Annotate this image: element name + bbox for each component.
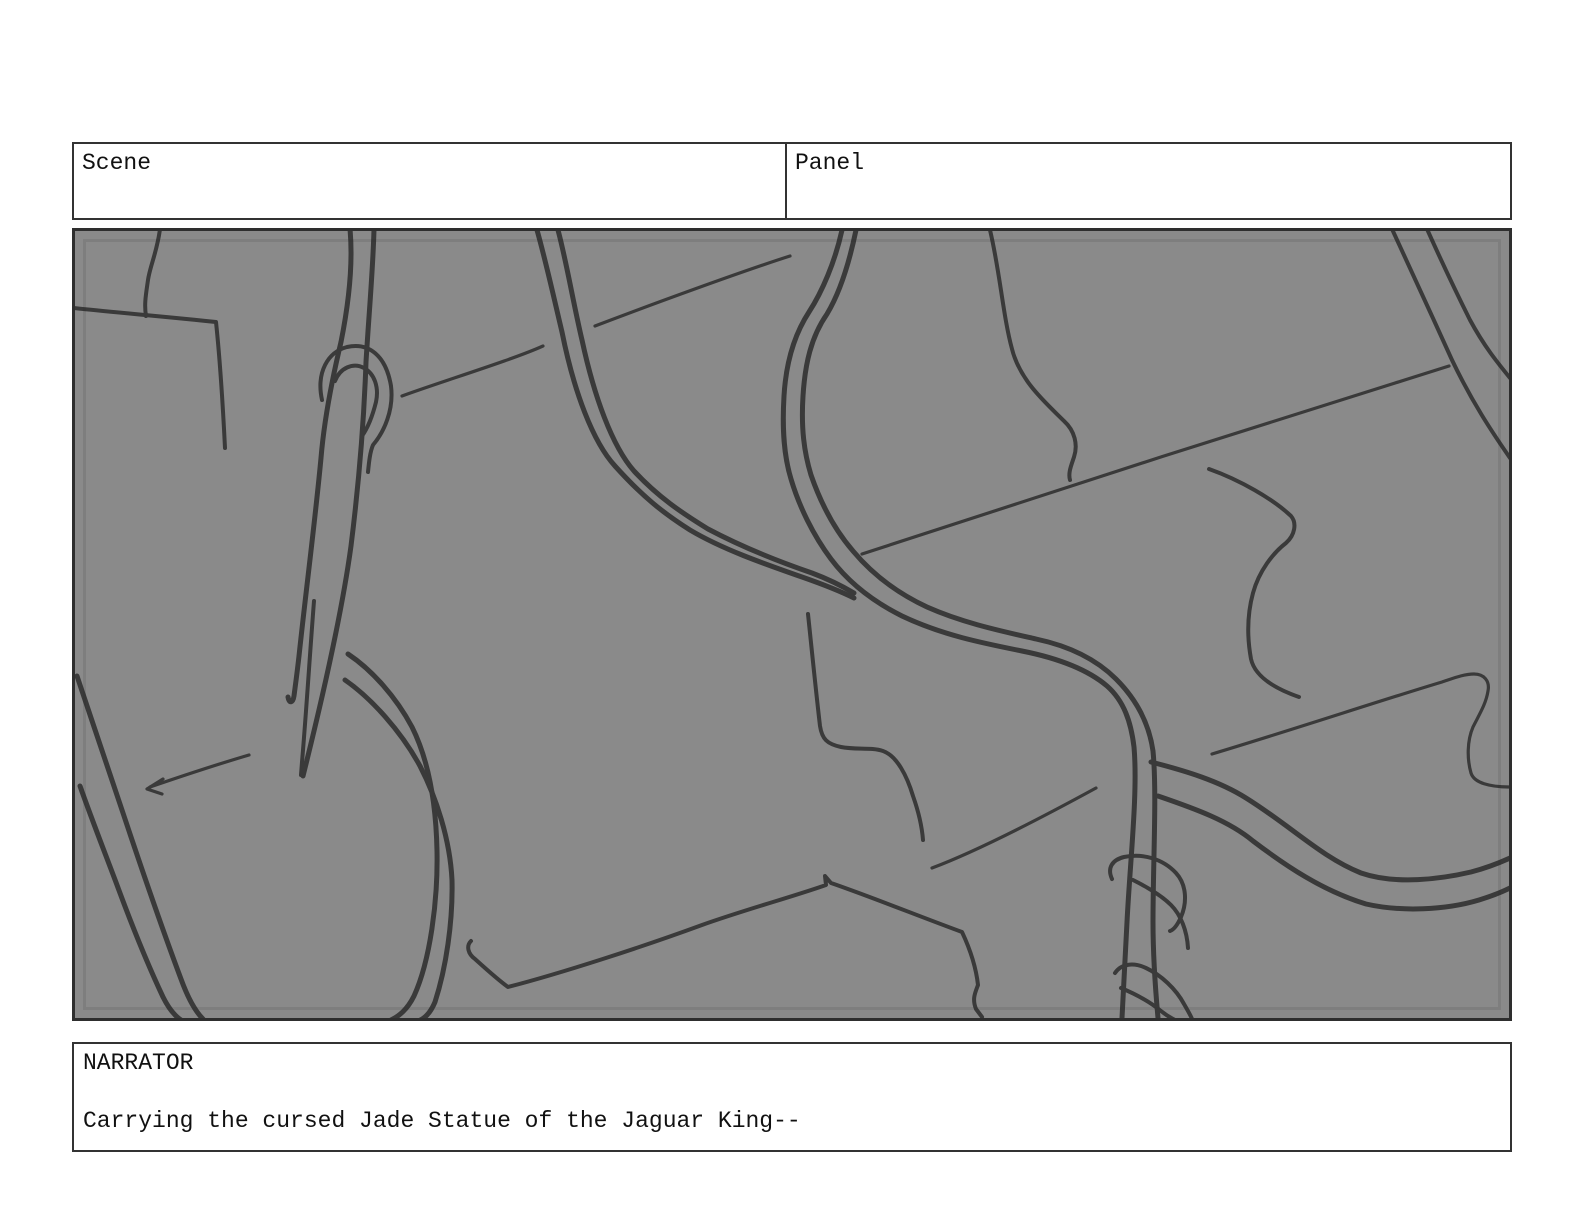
sketch-stroke — [74, 308, 225, 448]
storyboard-sheet: Scene Panel NARRATOR Carrying the cursed… — [0, 0, 1584, 1224]
sketch-stroke — [1158, 796, 1510, 909]
sketch-stroke — [862, 366, 1449, 554]
sketch-stroke — [932, 788, 1096, 868]
panel-label: Panel — [795, 150, 864, 176]
sketch-stroke — [595, 256, 790, 326]
scene-field[interactable]: Scene — [74, 144, 787, 218]
sketch-stroke — [1427, 229, 1510, 378]
sketch-stroke — [80, 786, 181, 1020]
sketch-stroke — [802, 230, 1158, 1018]
sketch-stroke — [150, 755, 249, 787]
scene-label: Scene — [82, 150, 151, 176]
dialog-speaker: NARRATOR — [83, 1049, 1501, 1078]
sketch-stroke — [288, 229, 351, 702]
dialog-line: Carrying the cursed Jade Statue of the J… — [83, 1107, 1501, 1136]
sketch-stroke — [1151, 762, 1510, 880]
sketch-stroke — [348, 654, 437, 1020]
sketch-stroke — [537, 230, 854, 598]
header-row: Scene Panel — [72, 142, 1512, 220]
sketch-stroke — [783, 230, 1135, 1018]
sketch-stroke — [808, 614, 923, 840]
sketch-stroke — [1110, 856, 1185, 931]
sketch-stroke — [468, 876, 982, 1017]
sketch-stroke — [990, 230, 1076, 480]
sketch-stroke — [1133, 880, 1188, 948]
sketch-svg — [72, 228, 1512, 1021]
panel-field[interactable]: Panel — [787, 144, 1510, 218]
sketch-stroke — [1121, 988, 1175, 1020]
sketch-stroke — [1212, 674, 1510, 787]
sketch-stroke — [402, 346, 543, 396]
sketch-stroke — [77, 676, 203, 1019]
sketch-stroke — [145, 229, 160, 316]
sketch-stroke — [1392, 229, 1510, 458]
dialog-box[interactable]: NARRATOR Carrying the cursed Jade Statue… — [72, 1042, 1512, 1152]
sketch-stroke — [1209, 469, 1299, 697]
storyboard-canvas[interactable] — [72, 228, 1512, 1021]
sketch-stroke — [335, 366, 377, 436]
